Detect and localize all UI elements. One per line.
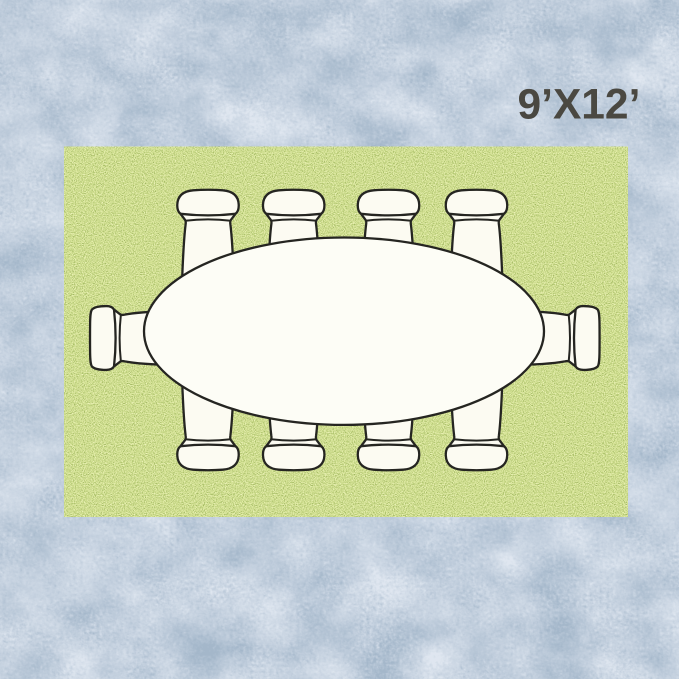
svg-text:9’X12’: 9’X12’ xyxy=(518,82,641,129)
